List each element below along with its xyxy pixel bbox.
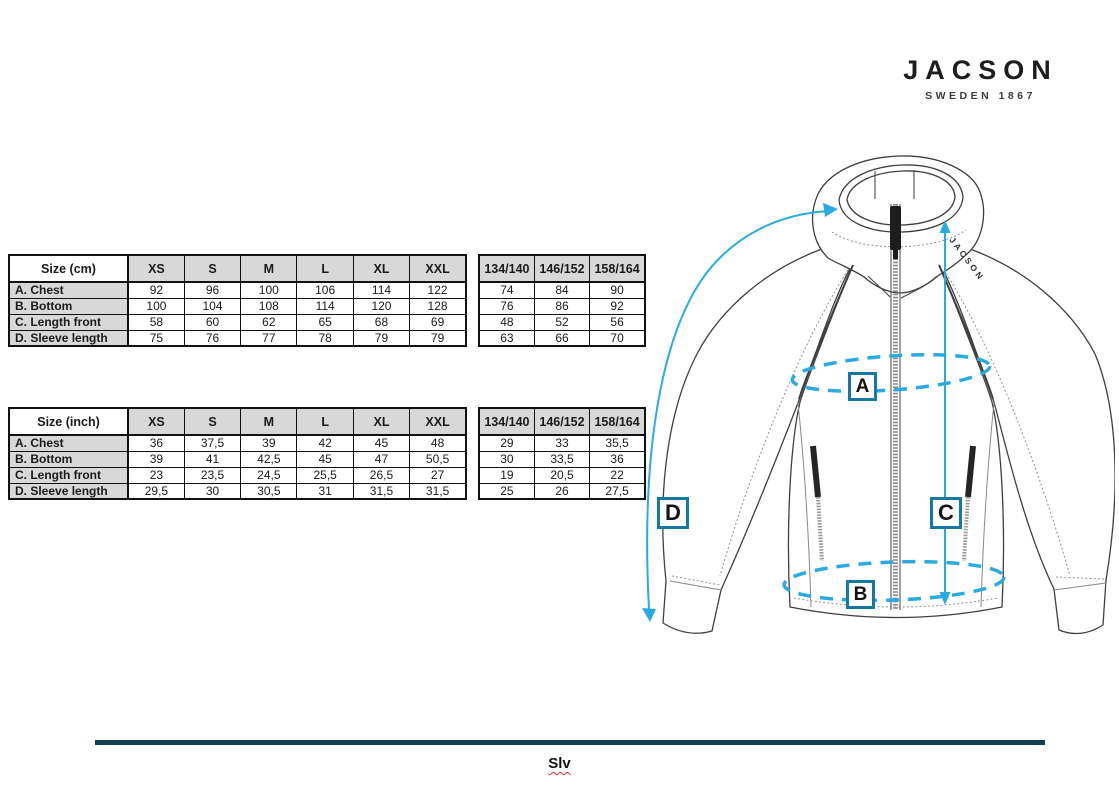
measure-marker-D: D xyxy=(657,497,689,529)
measurement-value: 84 xyxy=(534,282,589,298)
measurement-value: 104 xyxy=(184,298,240,314)
measurement-value: 75 xyxy=(128,330,184,346)
measurement-value: 120 xyxy=(353,298,409,314)
measurement-value: 19 xyxy=(479,467,534,483)
size-column-header: M xyxy=(241,408,297,435)
measurement-row: C. Length front2323,524,525,526,527 xyxy=(9,467,466,483)
measurement-value: 48 xyxy=(410,435,466,451)
measurement-row: B. Bottom394142,5454750,5 xyxy=(9,451,466,467)
measurement-value: 30,5 xyxy=(241,483,297,499)
measurement-value: 52 xyxy=(534,314,589,330)
measure-marker-A: A xyxy=(848,372,877,401)
measurement-value: 45 xyxy=(353,435,409,451)
measurement-value: 39 xyxy=(128,451,184,467)
measurement-value: 77 xyxy=(241,330,297,346)
measurement-value: 114 xyxy=(353,282,409,298)
measurement-row: D. Sleeve length757677787979 xyxy=(9,330,466,346)
measurement-value: 108 xyxy=(241,298,297,314)
measurement-row: C. Length front586062656869 xyxy=(9,314,466,330)
measurement-value: 92 xyxy=(128,282,184,298)
size-column-header: XL xyxy=(353,255,409,282)
measurement-label: C. Length front xyxy=(9,314,128,330)
measurement-value: 33 xyxy=(534,435,589,451)
size-column-header: M xyxy=(241,255,297,282)
measurement-value: 24,5 xyxy=(241,467,297,483)
size-table-cm-adult: Size (cm)XSSMLXLXXLA. Chest9296100106114… xyxy=(8,254,467,347)
measurement-value: 78 xyxy=(297,330,353,346)
brand-name: JACSON xyxy=(898,55,1063,86)
measurement-value: 29,5 xyxy=(128,483,184,499)
size-column-header: L xyxy=(297,408,353,435)
measurement-value: 79 xyxy=(353,330,409,346)
measurement-value: 33,5 xyxy=(534,451,589,467)
table-corner-label: Size (inch) xyxy=(9,408,128,435)
measure-marker-C: C xyxy=(930,497,962,529)
measurement-value: 31,5 xyxy=(353,483,409,499)
size-column-header: XXL xyxy=(410,408,466,435)
size-column-header: XXL xyxy=(410,255,466,282)
measurement-value: 60 xyxy=(184,314,240,330)
measurement-value: 23 xyxy=(128,467,184,483)
measurement-label: A. Chest xyxy=(9,435,128,451)
size-column-header: S xyxy=(184,408,240,435)
measurement-value: 29 xyxy=(479,435,534,451)
size-guide-page: JACSON SWEDEN 1867 Size (cm)XSSMLXLXXLA.… xyxy=(0,0,1119,786)
header-row: Size (inch)XSSMLXLXXL xyxy=(9,408,466,435)
measure-marker-B: B xyxy=(846,580,875,609)
measurement-value: 39 xyxy=(241,435,297,451)
measurement-value: 48 xyxy=(479,314,534,330)
measurement-value: 76 xyxy=(184,330,240,346)
measurement-value: 31,5 xyxy=(410,483,466,499)
measurement-value: 122 xyxy=(410,282,466,298)
size-column-header: XL xyxy=(353,408,409,435)
measurement-value: 45 xyxy=(297,451,353,467)
measurement-value: 26 xyxy=(534,483,589,499)
size-column-header: 146/152 xyxy=(534,408,589,435)
measurement-value: 23,5 xyxy=(184,467,240,483)
footer-caption-text: Slv xyxy=(548,755,571,772)
measurement-value: 26,5 xyxy=(353,467,409,483)
size-column-header: S xyxy=(184,255,240,282)
measurement-value: 42,5 xyxy=(241,451,297,467)
measurement-value: 58 xyxy=(128,314,184,330)
footer-caption: Slv xyxy=(0,755,1119,773)
measurement-value: 100 xyxy=(241,282,297,298)
measurement-value: 41 xyxy=(184,451,240,467)
measurement-label: D. Sleeve length xyxy=(9,483,128,499)
measurement-value: 25 xyxy=(479,483,534,499)
brand-tagline: SWEDEN 1867 xyxy=(898,90,1063,102)
measurement-value: 37,5 xyxy=(184,435,240,451)
measurement-value: 42 xyxy=(297,435,353,451)
size-column-header: 146/152 xyxy=(534,255,589,282)
size-column-header: L xyxy=(297,255,353,282)
measurement-value: 86 xyxy=(534,298,589,314)
table-corner-label: Size (cm) xyxy=(9,255,128,282)
size-column-header: 134/140 xyxy=(479,408,534,435)
measurement-value: 20,5 xyxy=(534,467,589,483)
measurement-value: 47 xyxy=(353,451,409,467)
measurement-label: B. Bottom xyxy=(9,451,128,467)
measurement-value: 69 xyxy=(410,314,466,330)
header-row: Size (cm)XSSMLXLXXL xyxy=(9,255,466,282)
zipper-pull xyxy=(893,250,898,259)
measurement-row: A. Chest3637,539424548 xyxy=(9,435,466,451)
zipper-slider xyxy=(890,206,901,250)
measurement-value: 31 xyxy=(297,483,353,499)
measurement-value: 50,5 xyxy=(410,451,466,467)
measurement-value: 27 xyxy=(410,467,466,483)
measurement-value: 79 xyxy=(410,330,466,346)
jacket-measurement-diagram: JACSON A B C D xyxy=(620,140,1115,660)
measurement-row: B. Bottom100104108114120128 xyxy=(9,298,466,314)
size-column-header: XS xyxy=(128,408,184,435)
measurement-value: 96 xyxy=(184,282,240,298)
measurement-value: 114 xyxy=(297,298,353,314)
measurement-value: 65 xyxy=(297,314,353,330)
size-column-header: 134/140 xyxy=(479,255,534,282)
measurement-label: B. Bottom xyxy=(9,298,128,314)
measurement-value: 74 xyxy=(479,282,534,298)
size-column-header: XS xyxy=(128,255,184,282)
measurement-value: 30 xyxy=(479,451,534,467)
measurement-value: 62 xyxy=(241,314,297,330)
footer-divider-rule xyxy=(95,740,1045,745)
measurement-value: 30 xyxy=(184,483,240,499)
measurement-value: 128 xyxy=(410,298,466,314)
measurement-row: A. Chest9296100106114122 xyxy=(9,282,466,298)
measurement-value: 63 xyxy=(479,330,534,346)
measurement-label: C. Length front xyxy=(9,467,128,483)
measurement-label: A. Chest xyxy=(9,282,128,298)
measurement-value: 100 xyxy=(128,298,184,314)
measurement-label: D. Sleeve length xyxy=(9,330,128,346)
measurement-row: D. Sleeve length29,53030,53131,531,5 xyxy=(9,483,466,499)
measurement-value: 36 xyxy=(128,435,184,451)
size-table-inch-adult: Size (inch)XSSMLXLXXLA. Chest3637,539424… xyxy=(8,407,467,500)
measurement-value: 106 xyxy=(297,282,353,298)
measurement-value: 68 xyxy=(353,314,409,330)
arrowhead-D-bottom xyxy=(642,608,656,622)
measurement-value: 25,5 xyxy=(297,467,353,483)
measurement-value: 76 xyxy=(479,298,534,314)
measurement-value: 66 xyxy=(534,330,589,346)
brand-logo: JACSON SWEDEN 1867 xyxy=(898,55,1063,102)
